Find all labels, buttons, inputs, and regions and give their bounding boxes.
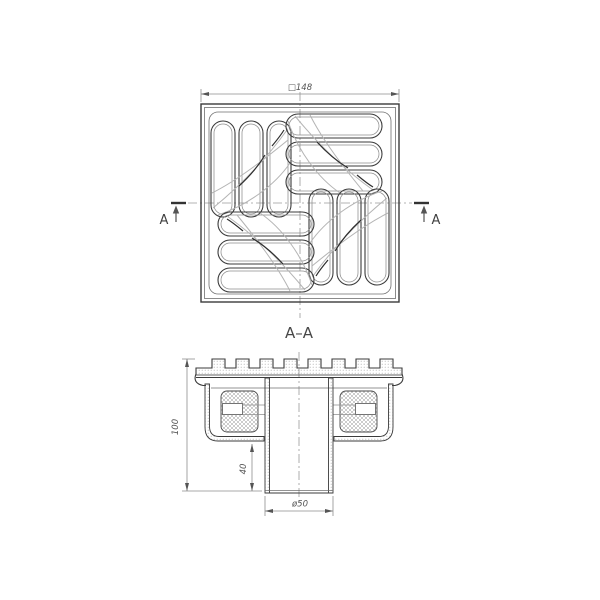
section-title: A–A [285, 324, 314, 342]
dimension-outlet-diameter: ø50 [265, 496, 333, 516]
cut-label-left: A [160, 213, 169, 228]
height-dimension-label: 100 [171, 419, 181, 435]
dimension-spigot-length: 40 [239, 444, 254, 491]
drawing-sheet: □148 A A A–A [0, 0, 600, 600]
overall-dimension-label: □148 [288, 83, 313, 93]
spigot-length-label: 40 [239, 464, 249, 475]
cut-label-right: A [432, 213, 441, 228]
outlet-diameter-label: ø50 [291, 500, 308, 510]
technical-drawing-canvas: □148 A A A–A [0, 0, 600, 600]
section-view: 100 40 ø50 [171, 352, 403, 516]
top-view: □148 A A [160, 83, 441, 318]
